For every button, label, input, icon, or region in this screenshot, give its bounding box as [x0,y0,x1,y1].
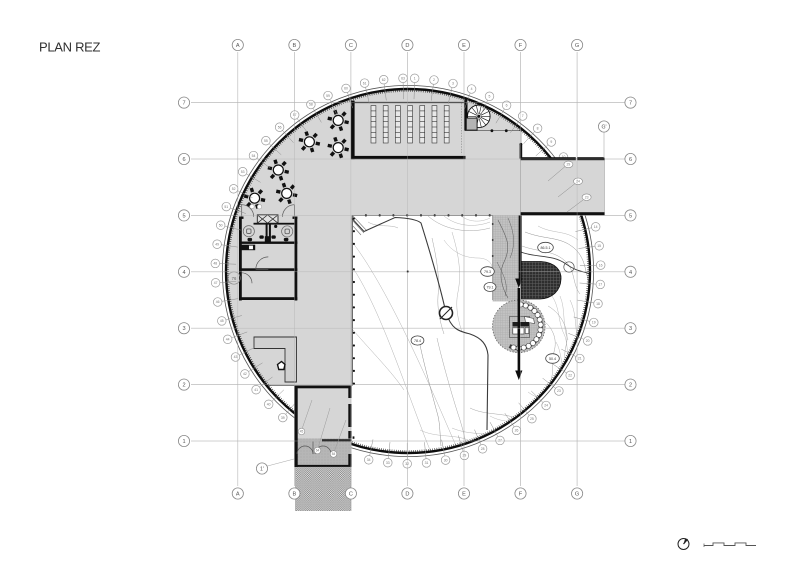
svg-text:61: 61 [363,81,367,85]
svg-text:1: 1 [414,77,416,81]
svg-text:23: 23 [585,196,589,200]
svg-text:41: 41 [254,388,258,392]
svg-text:D: D [405,492,409,498]
svg-text:23: 23 [557,389,561,393]
svg-text:9: 9 [550,140,552,144]
svg-text:2: 2 [182,383,185,389]
svg-text:5: 5 [489,95,491,99]
svg-text:B: B [293,492,297,498]
svg-text:24: 24 [576,180,580,184]
svg-text:B: B [293,43,297,49]
svg-text:22: 22 [568,374,572,378]
svg-text:F: F [519,492,523,498]
svg-text:30: 30 [444,458,448,462]
svg-text:F: F [519,43,523,49]
svg-text:14: 14 [594,225,598,229]
svg-text:A: A [236,43,240,49]
svg-text:24: 24 [544,404,548,408]
svg-text:62: 62 [382,78,386,82]
svg-text:55: 55 [264,139,268,143]
svg-text:44: 44 [226,338,230,342]
svg-text:39: 39 [281,416,285,420]
svg-text:53: 53 [241,170,245,174]
svg-text:1': 1' [260,467,264,473]
svg-text:G': G' [601,125,606,131]
svg-text:E: E [462,43,466,49]
svg-text:7: 7 [522,114,524,118]
svg-text:2: 2 [629,383,632,389]
svg-text:5: 5 [629,213,632,219]
svg-text:6: 6 [182,157,185,163]
svg-text:45: 45 [220,319,224,323]
svg-text:20: 20 [586,339,590,343]
svg-text:19: 19 [592,321,596,325]
svg-text:26: 26 [515,429,519,433]
svg-text:6: 6 [506,104,508,108]
svg-text:29: 29 [463,454,467,458]
svg-text:54: 54 [252,154,256,158]
svg-text:47: 47 [214,281,218,285]
svg-text:60: 60 [344,87,348,91]
svg-text:50.4: 50.4 [549,357,556,361]
svg-text:76: 76 [232,276,237,281]
svg-text:4: 4 [629,270,632,276]
svg-text:34: 34 [367,458,371,462]
svg-text:63: 63 [401,77,405,81]
svg-text:43: 43 [234,355,238,359]
svg-text:5: 5 [182,213,185,219]
svg-text:40: 40 [267,403,271,407]
svg-text:42: 42 [243,372,247,376]
svg-text:PLAN REZ: PLAN REZ [39,40,101,55]
svg-text:7: 7 [182,101,185,107]
svg-text:4: 4 [471,87,473,91]
svg-text:3: 3 [452,82,454,86]
svg-text:A: A [236,492,240,498]
svg-text:8: 8 [537,127,539,131]
svg-text:17: 17 [598,283,602,287]
svg-text:15: 15 [597,244,601,248]
svg-text:49: 49 [215,242,219,246]
svg-text:46: 46 [216,300,220,304]
svg-text:3: 3 [182,326,185,332]
svg-text:57: 57 [293,113,297,117]
svg-text:1: 1 [182,439,185,445]
svg-text:18: 18 [596,302,600,306]
svg-text:31: 31 [425,461,429,465]
svg-text:1: 1 [629,439,632,445]
svg-text:3: 3 [629,326,632,332]
svg-text:84: 84 [332,452,336,456]
svg-text:28: 28 [481,447,485,451]
svg-text:E: E [462,492,466,498]
svg-text:25: 25 [530,417,534,421]
svg-text:64: 64 [316,449,320,453]
svg-text:33: 33 [386,461,390,465]
svg-text:21: 21 [578,357,582,361]
svg-text:79.3: 79.3 [484,270,491,274]
svg-text:D: D [405,43,409,49]
svg-text:86.5.1: 86.5.1 [541,246,551,250]
svg-text:56: 56 [278,125,282,129]
svg-text:16: 16 [599,263,603,267]
svg-text:48: 48 [213,262,217,266]
svg-text:4: 4 [182,270,185,276]
svg-text:50: 50 [219,223,223,227]
svg-text:7: 7 [629,101,632,107]
svg-text:51: 51 [224,205,228,209]
svg-text:78.4: 78.4 [414,339,421,343]
svg-text:59: 59 [326,94,330,98]
svg-text:52: 52 [232,187,236,191]
svg-text:G: G [575,43,579,49]
svg-text:2: 2 [433,78,435,82]
svg-text:29: 29 [567,163,571,167]
svg-text:27: 27 [498,439,502,443]
svg-text:C: C [349,492,353,498]
svg-text:45: 45 [300,430,304,434]
svg-text:79.1: 79.1 [487,285,494,289]
svg-text:C: C [349,43,353,49]
svg-text:6: 6 [629,157,632,163]
svg-text:58: 58 [309,103,313,107]
svg-text:G: G [575,492,579,498]
